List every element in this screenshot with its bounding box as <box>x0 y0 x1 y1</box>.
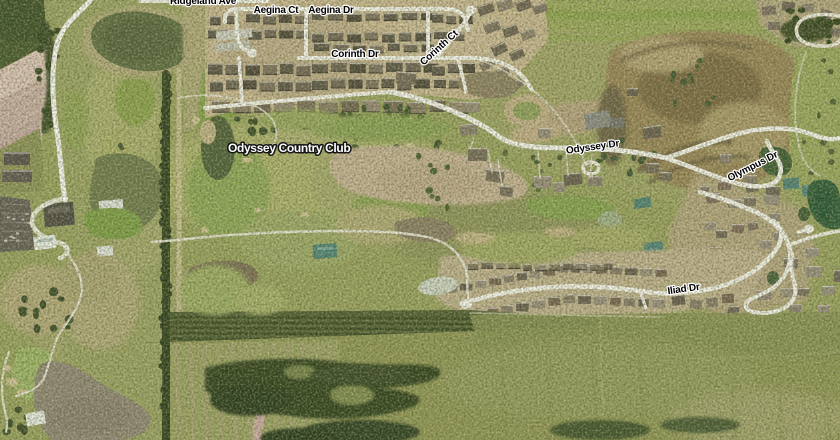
svg-text:Corinth Dr: Corinth Dr <box>331 49 379 60</box>
svg-text:Aegina Dr: Aegina Dr <box>308 5 354 16</box>
svg-text:Aegina Ct: Aegina Ct <box>254 5 300 16</box>
svg-text:Ridgeland Ave: Ridgeland Ave <box>170 0 237 7</box>
svg-text:Odyssey Country Club: Odyssey Country Club <box>228 141 350 155</box>
